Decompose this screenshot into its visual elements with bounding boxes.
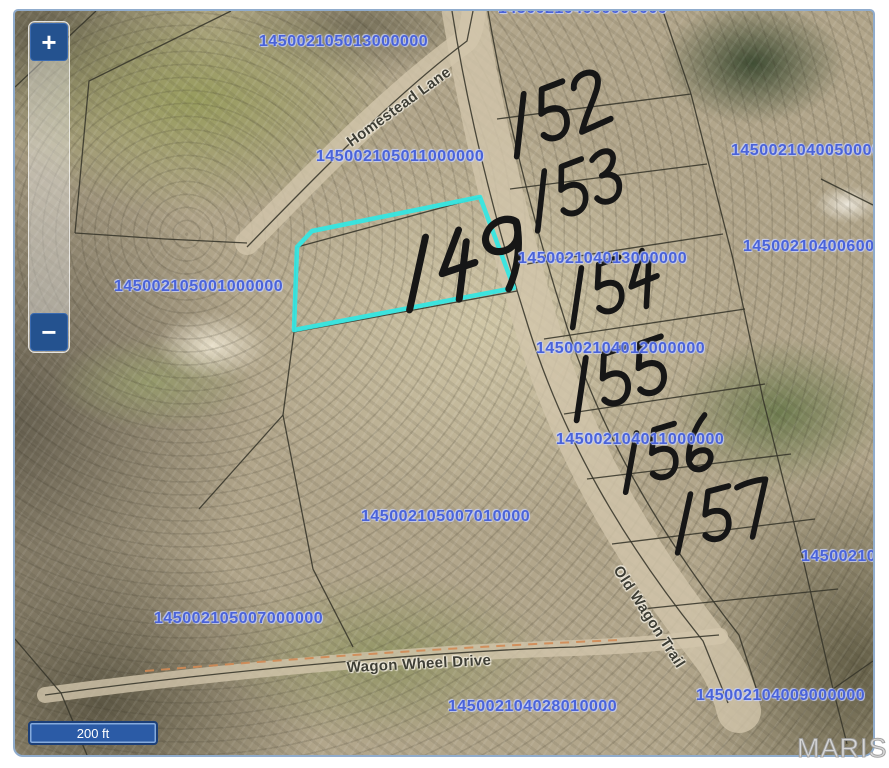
parcel-id-label: 145002105007010000	[361, 508, 530, 526]
zoom-slider-track[interactable]	[28, 21, 70, 353]
parcel-id-label: 145002104013000000	[518, 250, 687, 268]
parcel-boundary-lines	[15, 11, 873, 755]
scale-bar-label: 200 ft	[77, 726, 110, 741]
lot-number-annotation	[672, 478, 771, 552]
lot-number-annotation	[526, 149, 623, 231]
map-overlay-graphics	[15, 11, 873, 755]
parcel-id-label: 145002104000000000	[498, 9, 667, 18]
map-application-window: 1450021050130000001450021050110000001450…	[0, 0, 889, 768]
lot-number-annotation	[618, 415, 713, 492]
parcel-id-label: 145002104006000	[743, 238, 875, 256]
highlighted-parcel-outline	[294, 197, 514, 330]
zoom-control: + −	[28, 21, 70, 353]
parcel-id-label: 145002104028010000	[448, 698, 617, 716]
maris-watermark: MARIS	[797, 733, 888, 764]
parcel-id-label: 145002104009000000	[696, 687, 865, 705]
parcel-id-label: 145002104011000000	[556, 431, 724, 449]
parcel-id-label: 145002105001000000	[114, 278, 283, 296]
map-canvas[interactable]: 1450021050130000001450021050110000001450…	[13, 9, 875, 757]
parcel-id-label: 145002105013000000	[259, 33, 428, 51]
zoom-in-button[interactable]: +	[30, 23, 68, 61]
parcel-id-label: 145002105007000000	[154, 610, 323, 628]
scale-bar: 200 ft	[28, 721, 158, 745]
parcel-id-label: 1450021040050000	[731, 142, 875, 160]
parcel-id-label: 145002104012000000	[536, 340, 705, 358]
zoom-out-button[interactable]: −	[30, 313, 68, 351]
lot-number-annotation	[505, 68, 612, 156]
parcel-id-label: 145002104	[801, 548, 875, 566]
parcel-id-label: 145002105011000000	[316, 148, 484, 166]
